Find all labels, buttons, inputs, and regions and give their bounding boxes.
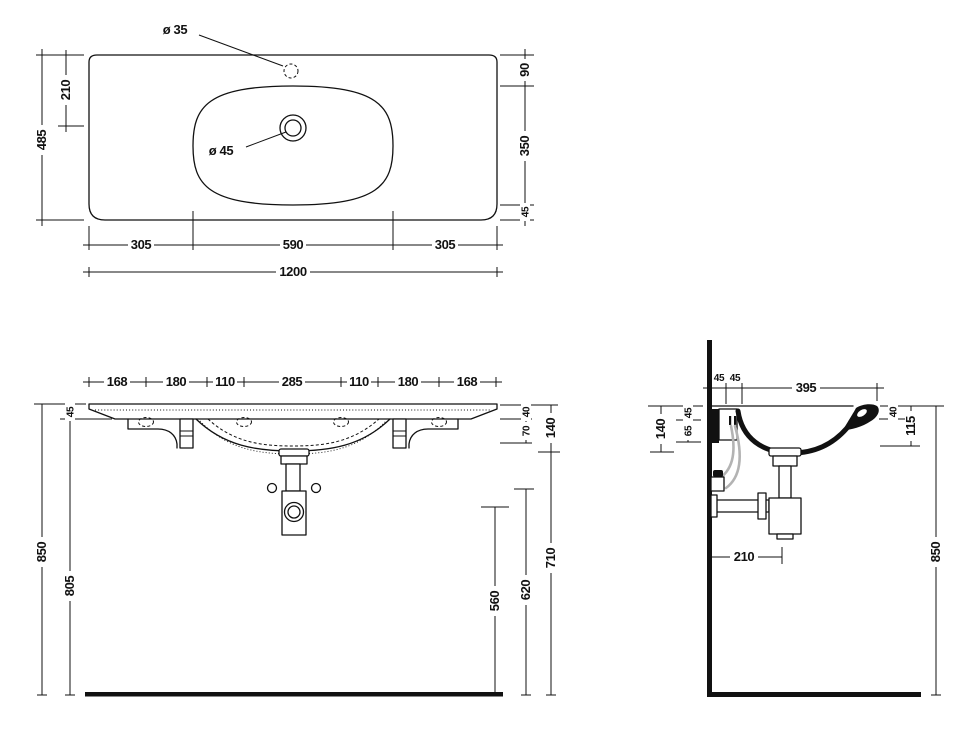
dim-line-710 (546, 452, 556, 695)
hose-stub-1 (729, 416, 731, 425)
fixing-screw-right (312, 484, 321, 493)
svg-text:850: 850 (928, 542, 943, 563)
dim-front-spacing-1: 168 (104, 374, 130, 389)
svg-text:140: 140 (653, 419, 668, 440)
svg-text:210: 210 (58, 80, 73, 101)
side-drain-ring (773, 456, 797, 466)
wall-line (707, 340, 712, 697)
dim-top-bowl-width: 590 (280, 237, 306, 252)
dim-top-width-total: 1200 (276, 264, 310, 279)
svg-text:140: 140 (543, 418, 558, 439)
bowl-section-curve (738, 411, 847, 453)
svg-text:180: 180 (398, 374, 419, 389)
svg-text:1200: 1200 (279, 264, 306, 279)
svg-text:70: 70 (522, 425, 533, 436)
side-trap-body (769, 498, 801, 534)
dim-front-clearance-height: 710 (543, 543, 558, 573)
dim-front-spacing-7: 168 (454, 374, 480, 389)
faucet-hole (284, 64, 298, 78)
svg-text:110: 110 (349, 374, 369, 389)
drain-tailpipe (286, 464, 300, 491)
side-trap-plug (777, 534, 793, 539)
bracket-left (180, 419, 193, 448)
dim-side-front-edge-drop: 40 (888, 403, 900, 421)
svg-text:850: 850 (34, 542, 49, 563)
svg-text:305: 305 (131, 237, 152, 252)
svg-text:590: 590 (283, 237, 304, 252)
bowl-curve-outer (196, 419, 390, 451)
drain-leader-line (246, 132, 286, 147)
svg-text:168: 168 (457, 374, 478, 389)
side-tailpipe (779, 466, 791, 498)
dim-side-back-gap-1: 45 (714, 373, 725, 384)
dim-top-left-to-bowl: 305 (128, 237, 154, 252)
dim-side-open-depth: 395 (792, 380, 820, 395)
dim-top-bowl-to-right: 305 (432, 237, 458, 252)
svg-text:485: 485 (34, 130, 49, 151)
svg-text:115: 115 (903, 416, 918, 436)
technical-drawing-page: ø 35 ø 45 485 210 90 350 45 (0, 0, 973, 731)
svg-text:350: 350 (517, 136, 532, 157)
svg-text:180: 180 (166, 374, 187, 389)
dim-front-spacing-2: 180 (163, 374, 189, 389)
dim-front-trap-outlet-height: 560 (487, 586, 502, 616)
dim-front-spacing-5: 110 (347, 374, 371, 389)
svg-text:45: 45 (66, 406, 77, 417)
angle-valve (711, 477, 724, 491)
svg-text:45: 45 (521, 206, 532, 217)
apron-right (409, 419, 458, 448)
dim-front-apron-drop: 70 (521, 422, 533, 440)
pipe-flange-wall (711, 495, 717, 517)
dim-front-basin-height: 140 (543, 413, 558, 443)
svg-text:395: 395 (796, 380, 817, 395)
svg-text:560: 560 (487, 591, 502, 612)
dim-side-back-gap-2: 45 (730, 373, 741, 384)
dim-side-height-total: 850 (928, 537, 943, 567)
dim-front-height-total: 850 (34, 537, 49, 567)
svg-text:45: 45 (684, 407, 695, 418)
dim-top-drain-from-back: 210 (58, 75, 73, 105)
svg-text:805: 805 (62, 576, 77, 597)
svg-text:110: 110 (215, 374, 235, 389)
dim-front-spacing-6: 180 (395, 374, 421, 389)
dim-top-bowl-depth: 350 (517, 131, 532, 161)
dim-line-805 (65, 404, 75, 695)
wall-bracket-section (712, 409, 719, 443)
drain-flange (279, 449, 309, 456)
side-drain-flange (769, 448, 801, 456)
front-rim-section (843, 404, 879, 430)
pipe-flange-trap (758, 493, 766, 519)
dim-side-bracket-drop: 65 (683, 422, 695, 440)
svg-text:305: 305 (435, 237, 456, 252)
dim-front-slab-offset: 45 (65, 403, 77, 421)
fixing-screw-left (268, 484, 277, 493)
side-view: 45 45 395 140 45 65 40 (648, 340, 944, 697)
dim-side-basin-height: 140 (653, 414, 668, 444)
svg-text:65: 65 (684, 425, 695, 436)
dim-top-back-to-bowl: 90 (517, 59, 532, 81)
bracket-right (393, 419, 406, 448)
dim-top-bowl-to-front: 45 (520, 203, 532, 221)
dim-front-edge-drop: 40 (521, 403, 533, 421)
svg-text:40: 40 (522, 406, 533, 417)
drain-nut (281, 456, 307, 464)
washbasin-technical-drawing: ø 35 ø 45 485 210 90 350 45 (0, 0, 973, 731)
svg-text:710: 710 (543, 548, 558, 569)
svg-text:168: 168 (107, 374, 128, 389)
faucet-leader-line (199, 35, 283, 66)
dim-front-spacing-4: 285 (279, 374, 305, 389)
floor-line-side (707, 692, 921, 697)
apron-left (128, 419, 177, 448)
trap-body (282, 491, 306, 535)
dim-top-depth-total: 485 (34, 125, 49, 155)
dim-side-trap-from-wall: 210 (730, 549, 758, 564)
top-view: ø 35 ø 45 485 210 90 350 45 (34, 22, 534, 279)
dim-faucet-diameter: ø 35 (163, 22, 188, 37)
dim-front-underside-height: 805 (62, 571, 77, 601)
floor-line-front (85, 692, 503, 697)
dim-side-rim-drop: 45 (683, 404, 695, 422)
svg-text:210: 210 (734, 549, 755, 564)
dim-drain-diameter: ø 45 (209, 143, 234, 158)
svg-text:40: 40 (889, 406, 900, 417)
countertop-outline (89, 55, 497, 220)
slab-profile (89, 404, 497, 419)
dim-side-front-height: 115 (903, 411, 918, 441)
drain-hole-inner (285, 120, 301, 136)
valve-knob (713, 470, 723, 477)
dim-front-trap-top-height: 620 (518, 575, 533, 605)
front-view: 168 180 110 285 110 180 168 (34, 374, 560, 697)
hose-stub-2 (734, 416, 736, 425)
svg-text:620: 620 (518, 580, 533, 601)
dim-front-spacing-3: 110 (213, 374, 237, 389)
drain-hole-outer (280, 115, 306, 141)
svg-text:285: 285 (282, 374, 303, 389)
svg-text:90: 90 (517, 63, 532, 77)
